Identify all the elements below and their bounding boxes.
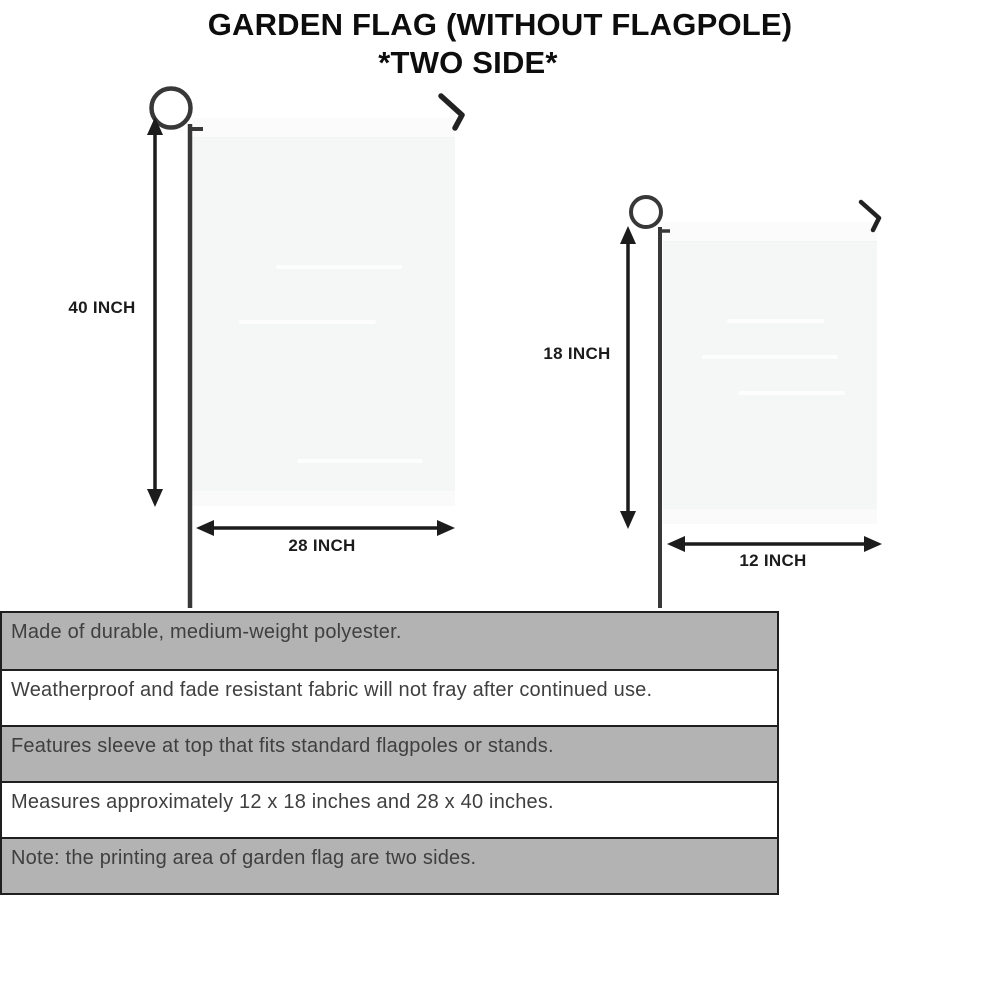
large-width-arrow-icon: [196, 520, 455, 536]
page-subtitle: *TWO SIDE*: [0, 45, 968, 81]
feature-row-weatherproof: Weatherproof and fade resistant fabric w…: [2, 669, 777, 725]
fold-mark: [702, 355, 839, 359]
fold-mark: [239, 320, 376, 324]
small-flag-sleeve: [663, 222, 877, 242]
fold-mark: [727, 319, 823, 323]
large-flag-hem: [192, 491, 455, 506]
fold-mark: [738, 391, 845, 395]
small-flag-height-label: 18 INCH: [543, 344, 610, 364]
small-flag-fabric: [663, 222, 877, 524]
large-height-arrow-icon: [147, 117, 163, 507]
product-diagram-page: GARDEN FLAG (WITHOUT FLAGPOLE) *TWO SIDE…: [0, 0, 1000, 1000]
large-flag-height-label: 40 INCH: [68, 298, 135, 318]
feature-row-material: Made of durable, medium-weight polyester…: [2, 613, 777, 669]
features-table: Made of durable, medium-weight polyester…: [0, 611, 779, 895]
small-flag-hem: [663, 509, 877, 524]
small-width-arrow-icon: [667, 536, 882, 552]
feature-row-note: Note: the printing area of garden flag a…: [2, 837, 777, 893]
page-title: GARDEN FLAG (WITHOUT FLAGPOLE): [0, 7, 1000, 43]
fold-mark: [297, 459, 423, 463]
feature-row-measurements: Measures approximately 12 x 18 inches an…: [2, 781, 777, 837]
small-height-arrow-icon: [620, 226, 636, 529]
large-flag-width-label: 28 INCH: [288, 536, 355, 556]
large-flag-sleeve: [192, 118, 455, 138]
large-flag-fabric: [192, 118, 455, 506]
feature-row-sleeve: Features sleeve at top that fits standar…: [2, 725, 777, 781]
small-flag-width-label: 12 INCH: [739, 551, 806, 571]
fold-mark: [276, 265, 402, 269]
